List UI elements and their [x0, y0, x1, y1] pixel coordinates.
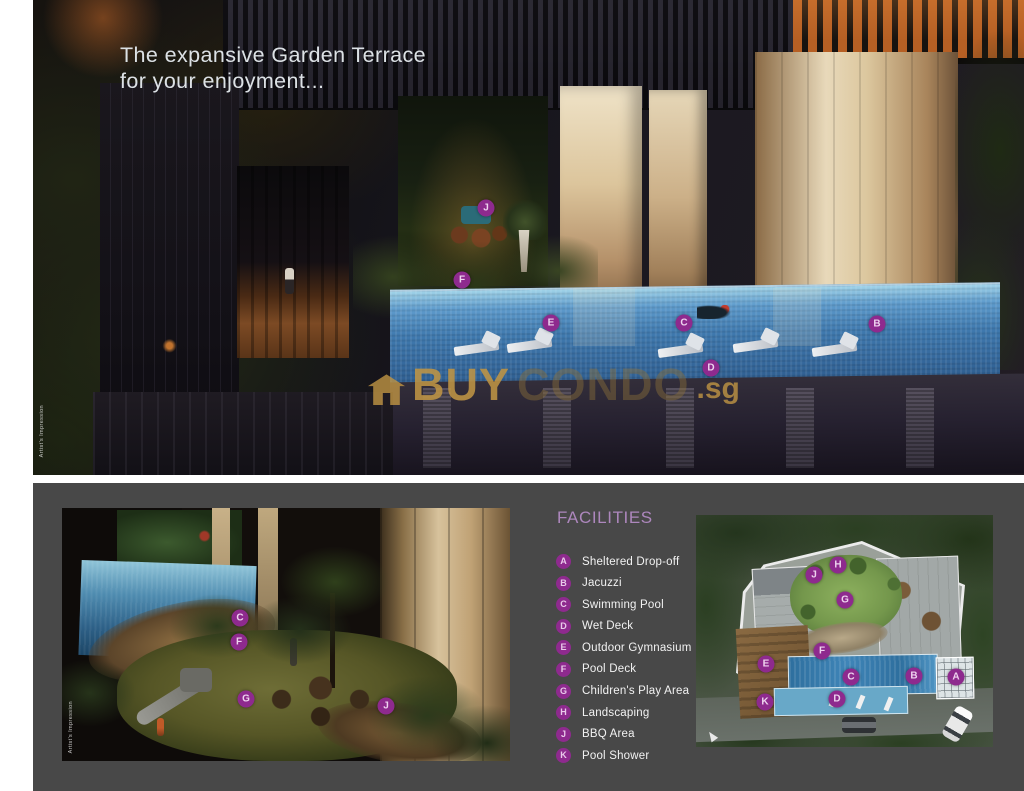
facility-label: Sheltered Drop-off	[582, 556, 679, 568]
facility-marker-siteplan-k: K	[757, 694, 774, 711]
facility-badge: D	[556, 619, 571, 634]
headline: The expansive Garden Terrace for your en…	[120, 42, 426, 94]
watermark-sg: .sg	[697, 374, 740, 405]
lounge-chair	[658, 334, 708, 362]
facility-badge: C	[556, 597, 571, 612]
pool-reflection	[573, 288, 635, 346]
outdoor-table-set	[262, 658, 392, 733]
facility-item: CSwimming Pool	[556, 597, 692, 612]
facility-label: Jacuzzi	[582, 577, 622, 589]
watermark: BUYCONDO.sg	[368, 364, 740, 405]
facility-label: Pool Deck	[582, 663, 636, 675]
interior-room	[237, 166, 349, 358]
facility-marker-terrace-b: B	[869, 316, 886, 333]
facility-marker-siteplan-e: E	[758, 656, 775, 673]
facility-marker-siteplan-b: B	[906, 668, 923, 685]
facility-item: FPool Deck	[556, 662, 692, 677]
facility-item: JBBQ Area	[556, 727, 692, 742]
car-dark	[842, 717, 876, 733]
facility-badge: J	[556, 727, 571, 742]
facility-label: Pool Shower	[582, 750, 649, 762]
facade-column	[906, 388, 934, 468]
facility-badge: K	[556, 748, 571, 763]
facility-marker-terrace-e: E	[543, 315, 560, 332]
facility-marker-siteplan-h: H	[830, 557, 847, 574]
lounge-chair	[454, 332, 504, 360]
facility-badge: E	[556, 640, 571, 655]
facility-badge: A	[556, 554, 571, 569]
headline-line1: The expansive Garden Terrace	[120, 42, 426, 68]
playground-slide-base	[180, 668, 212, 692]
facility-marker-siteplan-d: D	[829, 691, 846, 708]
lounge-chair	[812, 333, 862, 361]
facility-marker-siteplan-j: J	[806, 567, 823, 584]
facility-label: Outdoor Gymnasium	[582, 642, 692, 654]
facility-marker-siteplan-f: F	[814, 643, 831, 660]
facility-item: KPool Shower	[556, 748, 692, 763]
artist-impression-caption: Artist's Impression	[68, 701, 74, 753]
lit-building-wall	[755, 52, 958, 310]
brochure-page: The expansive Garden Terrace for your en…	[0, 0, 1024, 791]
facility-marker-terrace-d: D	[703, 360, 720, 377]
swimmer	[697, 305, 731, 319]
facility-label: BBQ Area	[582, 728, 635, 740]
facility-badge: G	[556, 684, 571, 699]
dark-tower-column	[100, 83, 239, 443]
facility-marker-siteplan-a: A	[948, 669, 965, 686]
cream-column-b	[649, 90, 707, 304]
watermark-condo: CONDO	[517, 364, 690, 405]
tree-canopy	[280, 546, 390, 618]
facility-item: EOutdoor Gymnasium	[556, 640, 692, 655]
facility-item: BJacuzzi	[556, 576, 692, 591]
facility-marker-terrace-j: J	[478, 200, 495, 217]
person-figure	[285, 268, 294, 294]
facility-marker-courtyard-j: J	[378, 698, 395, 715]
courtyard-photo: Artist's Impression	[62, 508, 510, 761]
facility-item: DWet Deck	[556, 619, 692, 634]
facility-marker-courtyard-c: C	[232, 610, 249, 627]
facilities-title: FACILITIES	[557, 508, 653, 528]
facilities-list: ASheltered Drop-offBJacuzziCSwimming Poo…	[556, 554, 692, 770]
facility-badge: B	[556, 576, 571, 591]
facility-label: Wet Deck	[582, 620, 633, 632]
facility-marker-courtyard-g: G	[238, 691, 255, 708]
lounge-chair	[507, 329, 557, 357]
lower-deck-left	[93, 392, 393, 475]
facility-marker-courtyard-f: F	[231, 634, 248, 651]
facility-label: Children's Play Area	[582, 685, 689, 697]
child-figure	[157, 718, 164, 736]
headline-line2: for your enjoyment...	[120, 68, 426, 94]
facility-marker-terrace-c: C	[676, 315, 693, 332]
facility-item: ASheltered Drop-off	[556, 554, 692, 569]
facility-label: Landscaping	[582, 707, 649, 719]
facility-item: HLandscaping	[556, 705, 692, 720]
facility-badge: H	[556, 705, 571, 720]
facility-marker-terrace-f: F	[454, 272, 471, 289]
lounge-chair	[733, 329, 783, 357]
watermark-buy: BUY	[412, 364, 510, 405]
house-icon	[368, 374, 405, 405]
facility-item: GChildren's Play Area	[556, 684, 692, 699]
facility-marker-siteplan-c: C	[843, 669, 860, 686]
facility-marker-siteplan-g: G	[837, 592, 854, 609]
artist-impression-caption: Artist's Impression	[39, 405, 45, 457]
facade-column	[786, 388, 814, 468]
site-plan	[696, 515, 993, 747]
facility-badge: F	[556, 662, 571, 677]
facility-label: Swimming Pool	[582, 599, 664, 611]
terrace-photo: The expansive Garden Terrace for your en…	[33, 0, 1024, 475]
